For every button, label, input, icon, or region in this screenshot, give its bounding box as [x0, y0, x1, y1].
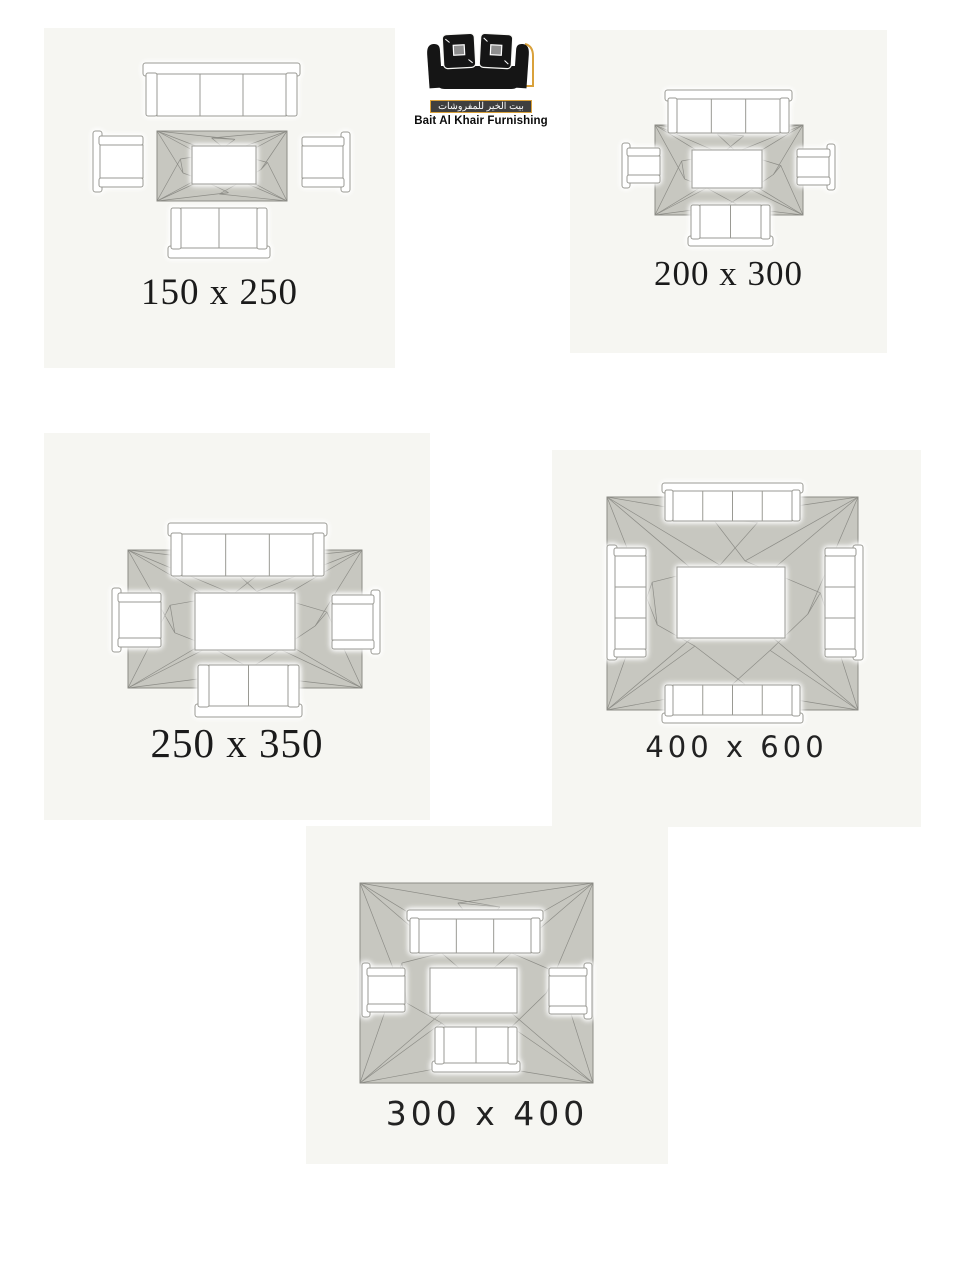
sofa	[407, 910, 543, 953]
layout-diagram-400x600	[552, 450, 921, 827]
brand-logo: بيت الخير للمفروشات Bait Al Khair Furnis…	[413, 30, 549, 127]
coffee-table	[192, 146, 256, 184]
panel-200x300: 200 x 300	[570, 30, 887, 353]
panel-300x400: 300 x 400	[306, 826, 668, 1164]
size-label-150x250: 150 x 250	[44, 271, 395, 314]
size-label-300x400: 300 x 400	[306, 1094, 668, 1133]
armchair	[302, 132, 350, 192]
pillow-icon	[442, 33, 476, 69]
layout-diagram-150x250	[44, 28, 395, 368]
sofa	[168, 523, 327, 576]
sofa	[143, 63, 300, 116]
coffee-table	[430, 968, 517, 1013]
coffee-table	[195, 593, 295, 650]
sofa	[662, 685, 803, 723]
loveseat	[688, 205, 773, 246]
loveseat	[168, 208, 270, 258]
coffee-table	[677, 567, 785, 638]
sofa-base	[437, 66, 519, 89]
loveseat	[432, 1027, 520, 1072]
armchair	[549, 963, 592, 1019]
brand-name-english: Bait Al Khair Furnishing	[413, 115, 549, 127]
panel-150x250: 150 x 250	[44, 28, 395, 368]
armchair	[362, 963, 405, 1017]
loveseat	[195, 665, 302, 717]
armchair	[332, 590, 380, 654]
rug-size-guide-page: بيت الخير للمفروشات Bait Al Khair Furnis…	[0, 0, 960, 1280]
coffee-table	[692, 150, 762, 188]
armchair	[112, 588, 161, 652]
size-label-250x350: 250 x 350	[44, 719, 430, 767]
layout-diagram-200x300	[570, 30, 887, 353]
size-label-400x600: 400 x 600	[552, 730, 921, 764]
sofa	[662, 483, 803, 521]
pillow-icon	[479, 33, 513, 69]
sofa-logo-icon	[425, 30, 537, 96]
size-label-200x300: 200 x 300	[570, 254, 887, 294]
sofa	[607, 545, 646, 660]
panel-250x350: 250 x 350	[44, 433, 430, 820]
brand-name-arabic: بيت الخير للمفروشات	[430, 100, 532, 113]
armchair	[93, 131, 143, 192]
sofa	[825, 545, 863, 660]
armchair	[797, 144, 835, 190]
panel-400x600: 400 x 600	[552, 450, 921, 827]
sofa	[665, 90, 792, 133]
armchair	[622, 143, 660, 188]
